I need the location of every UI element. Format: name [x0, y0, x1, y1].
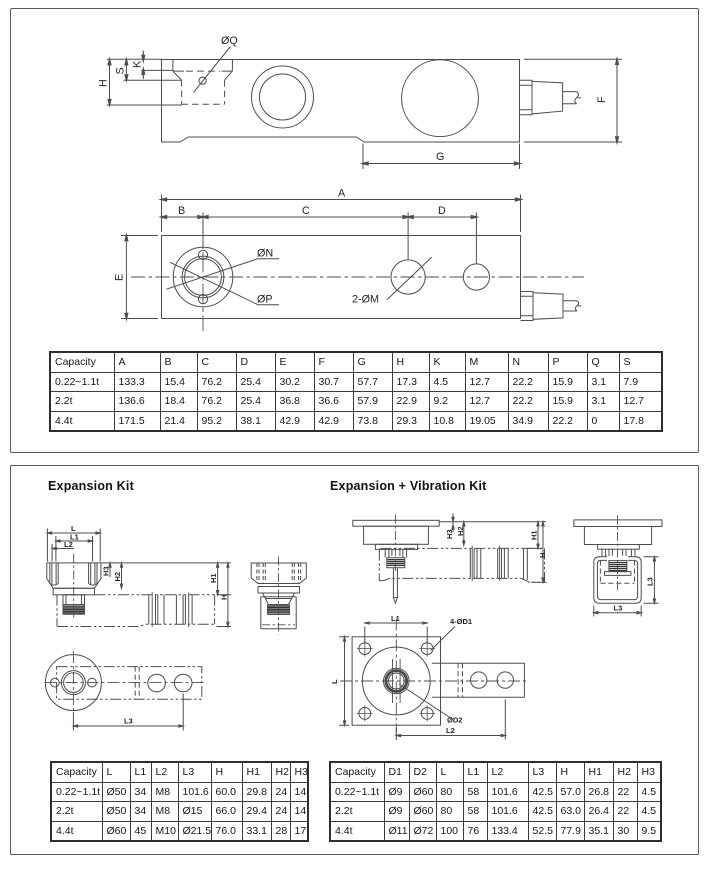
- svg-text:L1: L1: [391, 614, 400, 623]
- svg-text:L2: L2: [64, 540, 73, 549]
- svg-text:H2: H2: [113, 572, 122, 582]
- svg-text:H: H: [220, 595, 229, 600]
- svg-text:ØQ: ØQ: [221, 35, 238, 47]
- svg-text:H2: H2: [456, 526, 465, 536]
- svg-text:B: B: [178, 205, 185, 217]
- svg-text:L2: L2: [446, 726, 455, 735]
- svg-text:ØD2: ØD2: [447, 716, 462, 725]
- svg-text:K: K: [132, 60, 144, 68]
- svg-text:L3: L3: [646, 577, 655, 586]
- svg-text:H3: H3: [445, 529, 454, 539]
- svg-text:L: L: [330, 679, 339, 684]
- svg-text:S: S: [115, 67, 127, 74]
- svg-text:E: E: [114, 274, 126, 281]
- svg-text:H: H: [98, 79, 110, 87]
- svg-text:H3: H3: [102, 566, 111, 576]
- svg-text:ØN: ØN: [257, 248, 273, 260]
- svg-text:L3: L3: [124, 717, 133, 726]
- svg-text:H1: H1: [209, 573, 218, 583]
- svg-text:C: C: [302, 205, 310, 217]
- svg-text:G: G: [436, 151, 444, 163]
- svg-text:4-ØD1: 4-ØD1: [450, 617, 472, 626]
- svg-text:ØP: ØP: [257, 294, 273, 306]
- svg-text:2-ØM: 2-ØM: [352, 294, 379, 306]
- svg-text:D: D: [438, 205, 446, 217]
- svg-text:A: A: [338, 188, 346, 200]
- svg-text:L3: L3: [614, 604, 623, 613]
- svg-text:F: F: [596, 96, 608, 103]
- svg-text:H: H: [538, 553, 547, 558]
- svg-text:H1: H1: [530, 530, 539, 540]
